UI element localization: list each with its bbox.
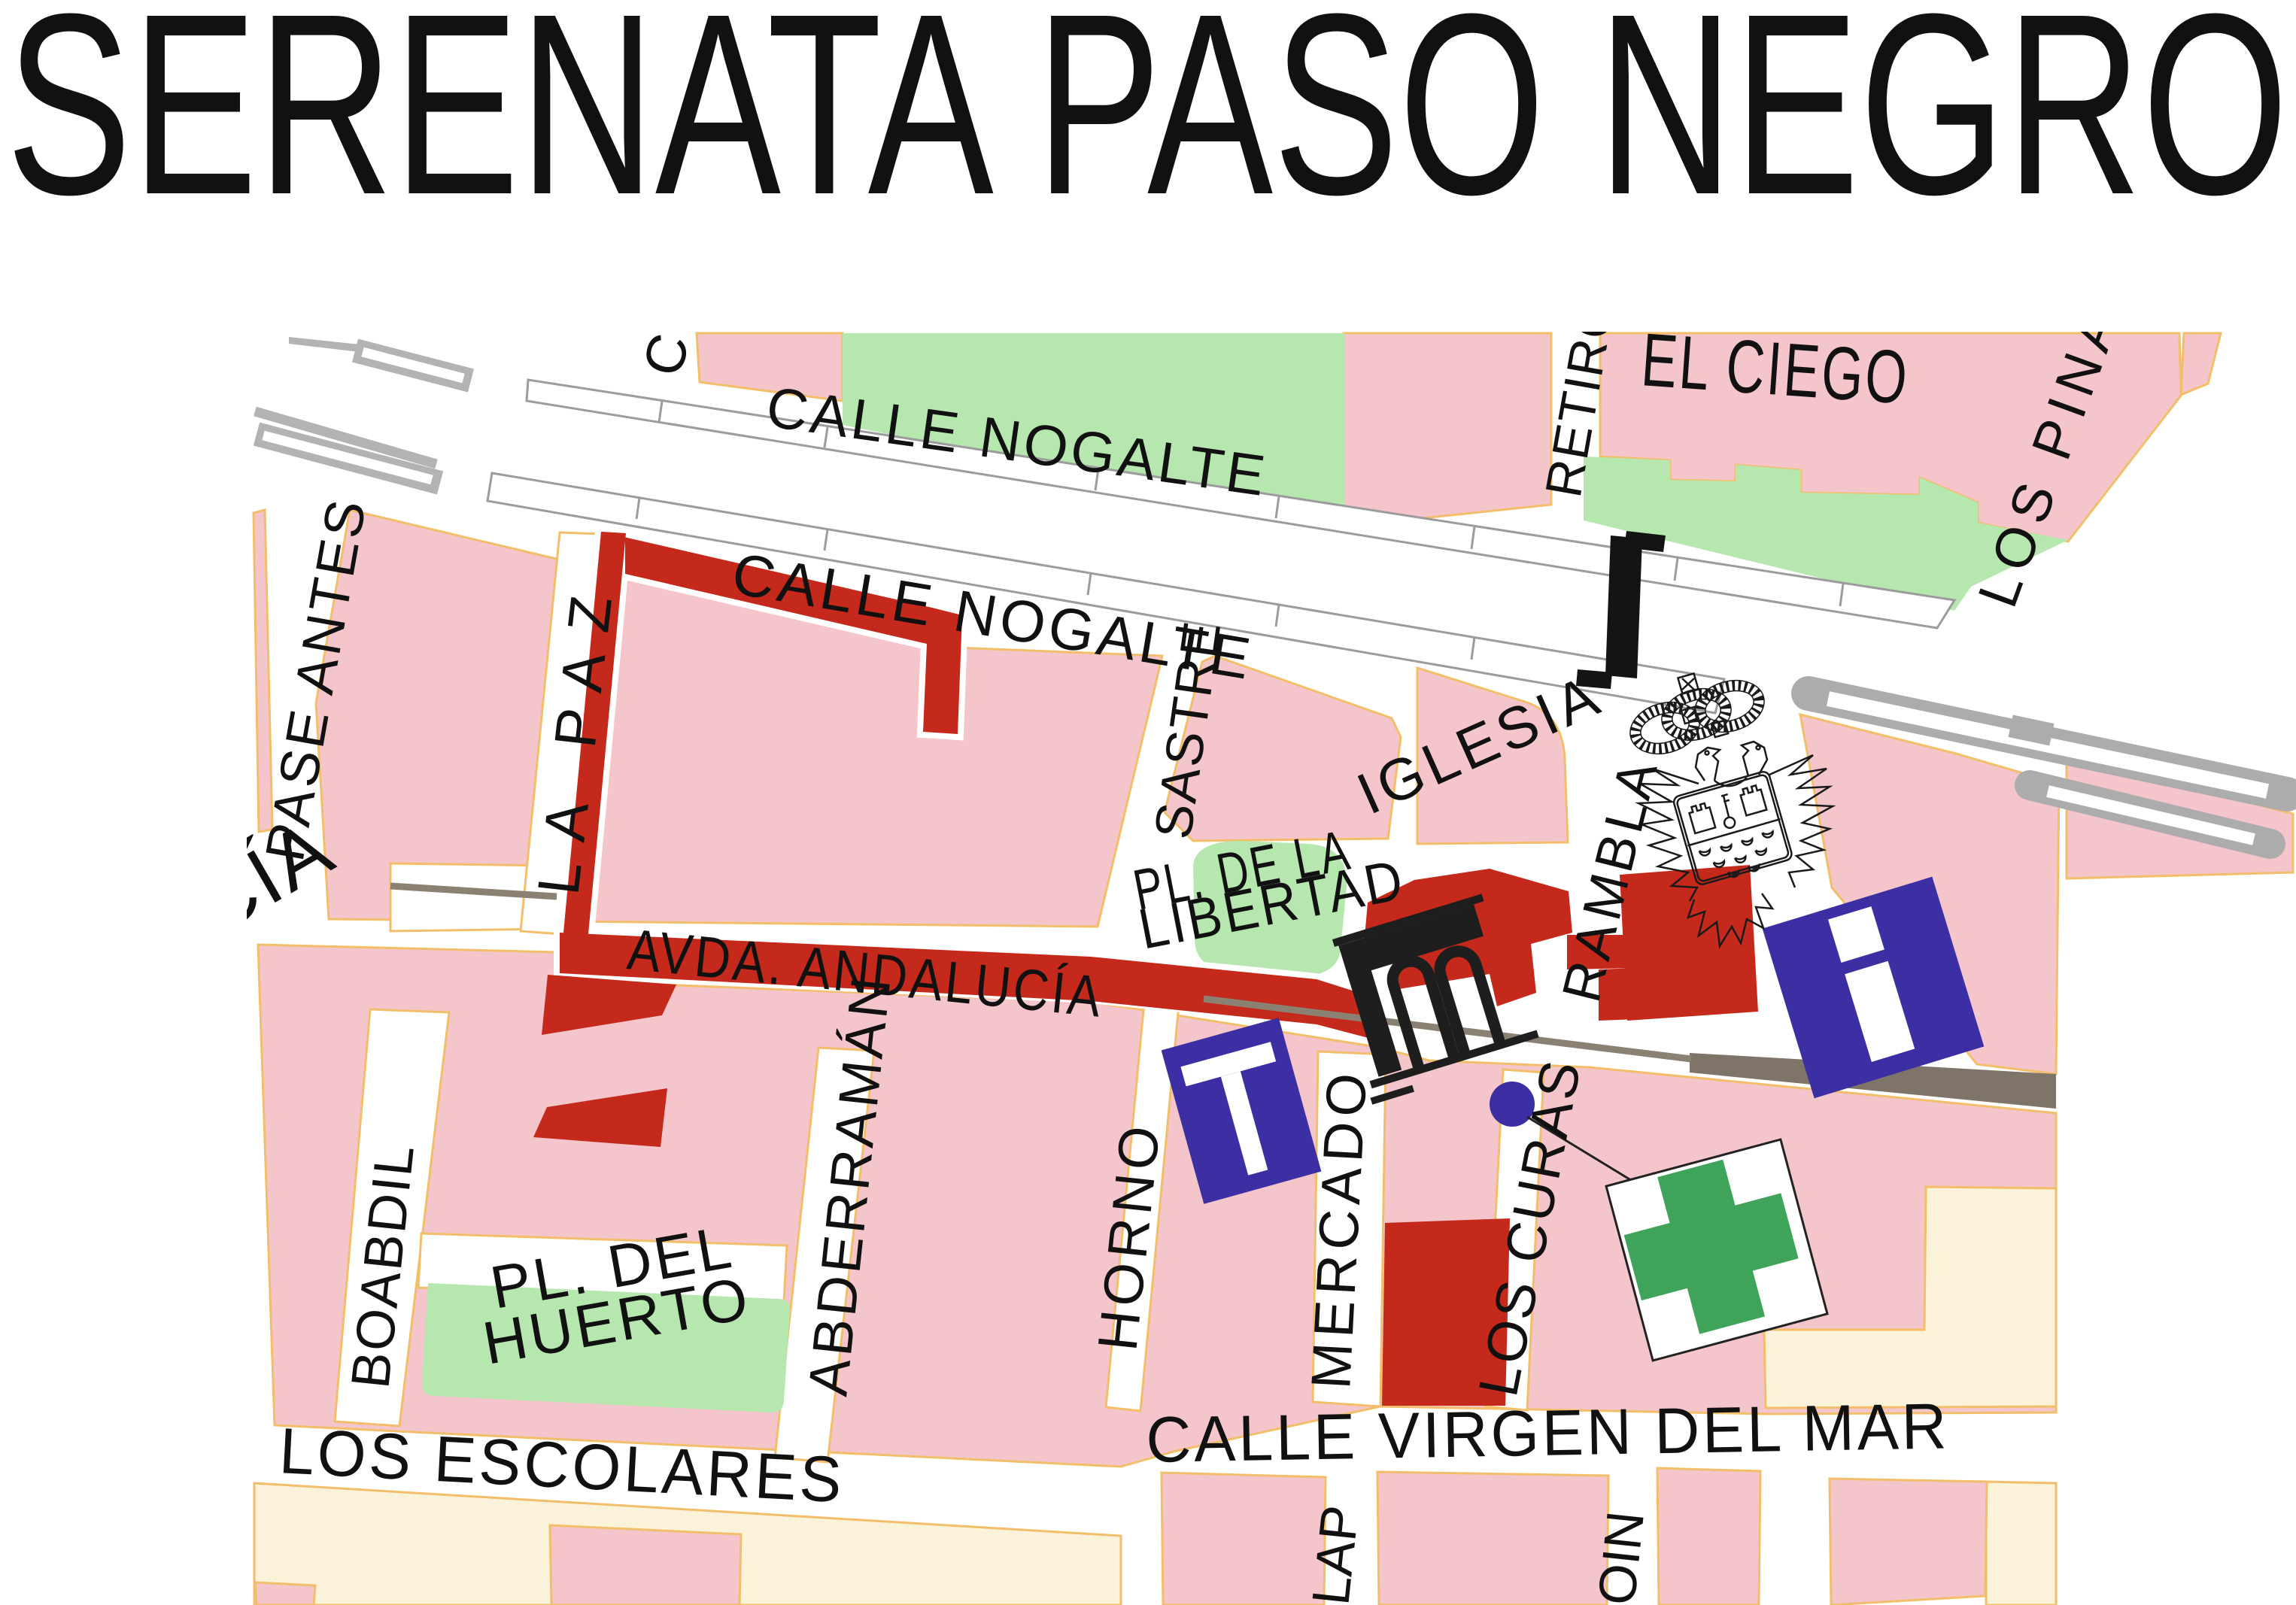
svg-text:LAP: LAP: [1301, 1503, 1369, 1605]
svg-text:SERENATA PASO NEGRO: SERENATA PASO NEGRO: [6, 0, 2288, 248]
svg-text:CALLE VIRGEN DEL MAR: CALLE VIRGEN DEL MAR: [1146, 1390, 1951, 1476]
svg-text:OIN: OIN: [1587, 1509, 1655, 1605]
